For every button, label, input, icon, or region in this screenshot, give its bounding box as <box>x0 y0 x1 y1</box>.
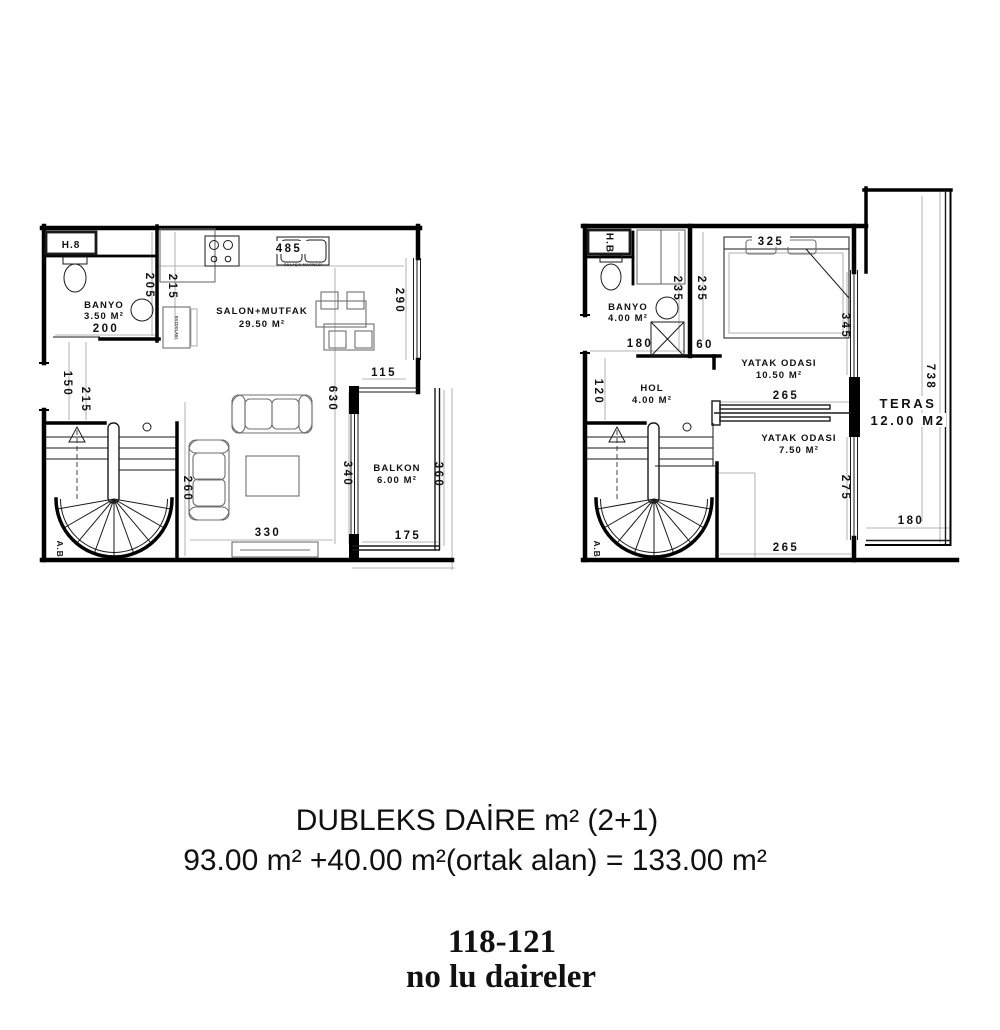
dim-115: 115 <box>371 367 397 379</box>
dim-180b: 180 <box>898 515 924 527</box>
dim-235a: 235 <box>671 276 683 302</box>
dim-150: 150 <box>61 371 73 397</box>
floor-plan-sheet: H.8 BANYO 3.50 M² 200 205 215 SALON+MUTF… <box>0 0 1000 1030</box>
stair-label: A.B <box>592 540 602 557</box>
dim-215b: 215 <box>79 387 91 413</box>
bed <box>724 237 849 338</box>
dining-set <box>316 292 374 350</box>
sofa <box>189 440 229 520</box>
dim-200: 200 <box>93 323 119 335</box>
dim-630: 630 <box>326 386 338 412</box>
dim-340: 340 <box>341 461 353 487</box>
caption-unit-suffix: no lu daireler <box>406 959 596 995</box>
caption-unit-range: 118-121 <box>448 924 556 960</box>
dim-265b: 265 <box>773 542 799 554</box>
dimension-lines <box>55 232 455 570</box>
dim-290: 290 <box>393 288 405 314</box>
terrace-railing <box>864 188 951 545</box>
dim-60: 60 <box>696 339 714 351</box>
room-label-balkon: BALKON <box>373 463 420 474</box>
dim-265a: 265 <box>773 390 799 402</box>
caption-block: DUBLEKS DAİRE m² (2+1) 93.00 m² +40.00 m… <box>183 804 767 995</box>
dim-205: 205 <box>143 273 155 299</box>
dim-260: 260 <box>181 476 193 502</box>
room-area-hol: 4.00 M² <box>632 395 672 406</box>
room-area-salon: 29.50 M² <box>239 319 285 330</box>
dim-120: 120 <box>592 379 604 405</box>
dim-345: 345 <box>839 313 851 339</box>
stair-label: A.B <box>55 540 65 557</box>
dim-330: 330 <box>255 527 281 539</box>
floor-plan-right: H.B BANYO 4.00 M² 180 235 235 60 325 345… <box>581 188 957 560</box>
dim-235b: 235 <box>695 276 707 302</box>
room-area-banyo: 4.00 M² <box>608 313 648 324</box>
room-label-teras: TERAS <box>879 396 936 411</box>
caption-title: DUBLEKS DAİRE m² (2+1) <box>296 804 659 837</box>
dim-215: 215 <box>166 274 178 300</box>
room-area-teras: 12.00 M2 <box>870 413 945 428</box>
coffee-table <box>246 456 299 496</box>
room-area-yatak1: 10.50 M² <box>756 370 802 381</box>
fridge-label: BUZDOLABI <box>175 316 179 339</box>
room-label-banyo: BANYO <box>608 302 648 313</box>
window <box>414 258 421 360</box>
stove <box>205 236 239 266</box>
dim-485: 485 <box>276 243 302 255</box>
toilet <box>600 255 622 290</box>
room-label-hol: HOL <box>640 383 663 394</box>
dishwasher-label: BULAŞIK MAKİNESİ <box>284 263 322 267</box>
washbasin <box>131 299 153 321</box>
wardrobe-partition <box>712 401 851 425</box>
floor-plan-drawing: H.8 BANYO 3.50 M² 200 205 215 SALON+MUTF… <box>0 0 1000 1030</box>
dim-180: 180 <box>627 338 653 350</box>
toilet <box>63 257 87 292</box>
unit-label: H.8 <box>62 240 81 251</box>
dim-738: 738 <box>924 364 936 390</box>
floor-plan-left: H.8 BANYO 3.50 M² 200 205 215 SALON+MUTF… <box>40 226 455 570</box>
room-area-yatak2: 7.50 M² <box>779 445 819 456</box>
room-area-balkon: 6.00 M² <box>377 475 417 486</box>
room-label-banyo: BANYO <box>84 300 124 311</box>
dim-275: 275 <box>839 475 851 501</box>
spiral-staircase <box>46 423 177 557</box>
walls <box>40 226 452 560</box>
dim-175: 175 <box>395 530 421 542</box>
unit-label: H.B <box>603 233 614 253</box>
spiral-staircase <box>586 423 713 557</box>
room-label-yatak1: YATAK ODASI <box>741 358 816 369</box>
room-label-yatak2: YATAK ODASI <box>761 433 836 444</box>
room-area-banyo: 3.50 M² <box>84 311 124 322</box>
room-label-salon: SALON+MUTFAK <box>216 306 308 317</box>
sofa <box>232 395 312 433</box>
tv-unit <box>232 542 318 557</box>
dim-360: 360 <box>432 462 444 488</box>
dim-325: 325 <box>758 236 784 248</box>
fridge <box>163 307 197 348</box>
caption-area-summary: 93.00 m² +40.00 m²(ortak alan) = 133.00 … <box>183 844 767 877</box>
